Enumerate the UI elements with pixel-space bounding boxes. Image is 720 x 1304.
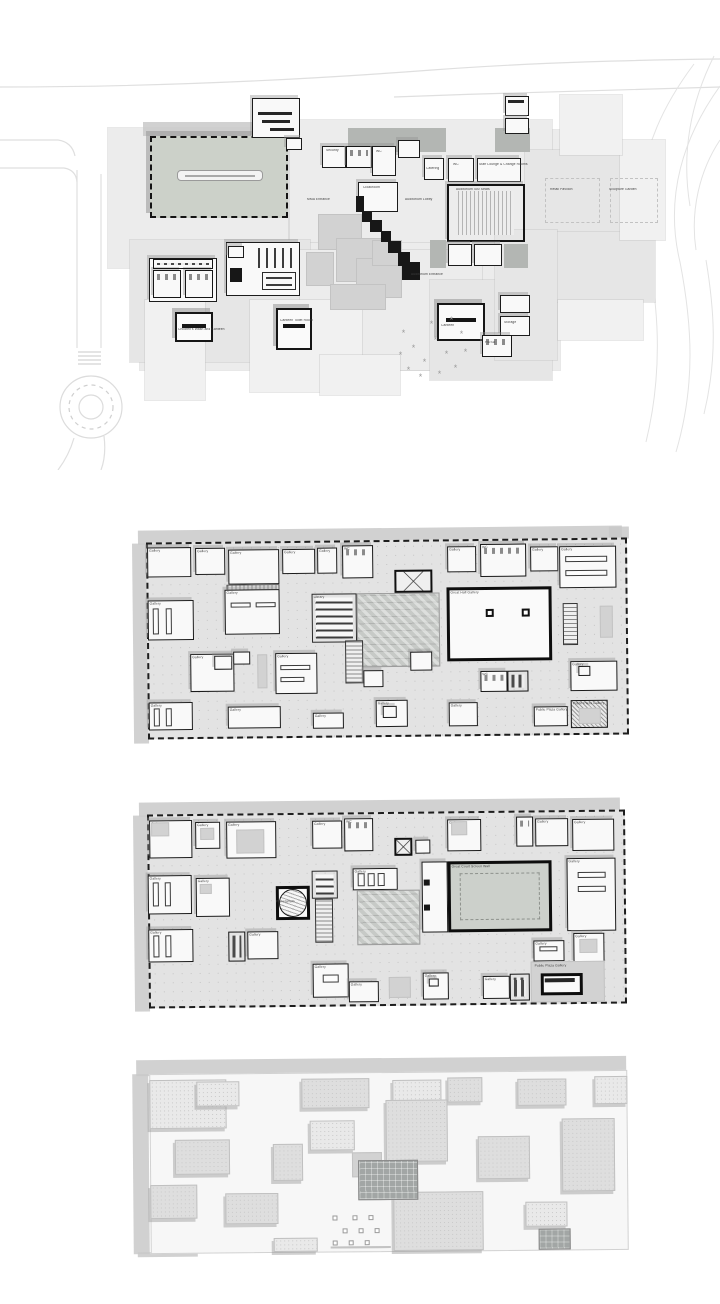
skylight — [365, 1240, 370, 1245]
roof-patch — [175, 1139, 230, 1174]
roof-patch — [517, 1078, 566, 1105]
roof-patch — [301, 1078, 369, 1109]
skylight — [332, 1215, 337, 1220]
skylight — [375, 1228, 380, 1233]
roof-patch — [310, 1120, 355, 1150]
roof-patch — [196, 1081, 239, 1106]
floor-plan-sheet: **************MMA EntranceCloakroomAudit… — [0, 0, 720, 1304]
roof-patch — [225, 1193, 278, 1224]
roof-patch — [594, 1076, 627, 1104]
skylight — [333, 1240, 338, 1245]
roof-patch — [385, 1099, 448, 1162]
roof-patch — [525, 1201, 567, 1226]
roof-patch — [447, 1077, 482, 1102]
skylight — [343, 1228, 348, 1233]
skylight — [352, 1215, 357, 1220]
roof-patch — [562, 1118, 616, 1191]
roof-patch — [393, 1191, 484, 1251]
atrium-skylight — [358, 1160, 418, 1201]
roof-patch — [274, 1238, 318, 1252]
skylight — [368, 1215, 373, 1220]
building-shadow — [132, 1074, 150, 1254]
roof-plan — [0, 0, 720, 1304]
skylight — [349, 1240, 354, 1245]
roof-patch — [273, 1144, 303, 1181]
roof-patch — [150, 1185, 197, 1219]
skylight — [359, 1228, 364, 1233]
roof-patch — [478, 1136, 530, 1179]
mechanical-unit — [539, 1228, 571, 1249]
